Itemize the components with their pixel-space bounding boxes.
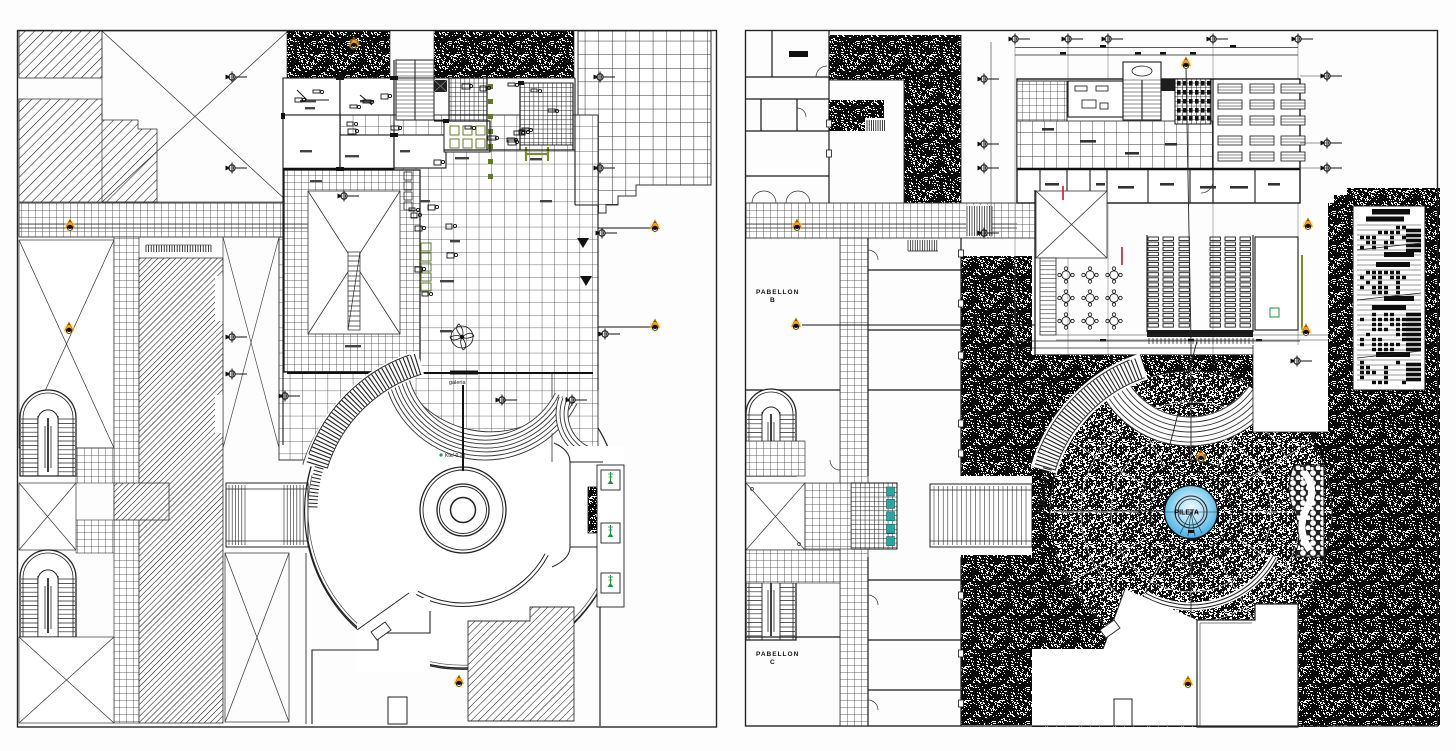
svg-text:PILETA: PILETA [1175,510,1199,517]
svg-text:Kte/-0.20: Kte/-0.20 [445,453,466,459]
svg-text:C: C [770,659,775,666]
svg-text:PABELLON: PABELLON [756,651,799,658]
svg-text:PABELLON: PABELLON [756,289,799,296]
svg-text:B: B [770,297,775,304]
